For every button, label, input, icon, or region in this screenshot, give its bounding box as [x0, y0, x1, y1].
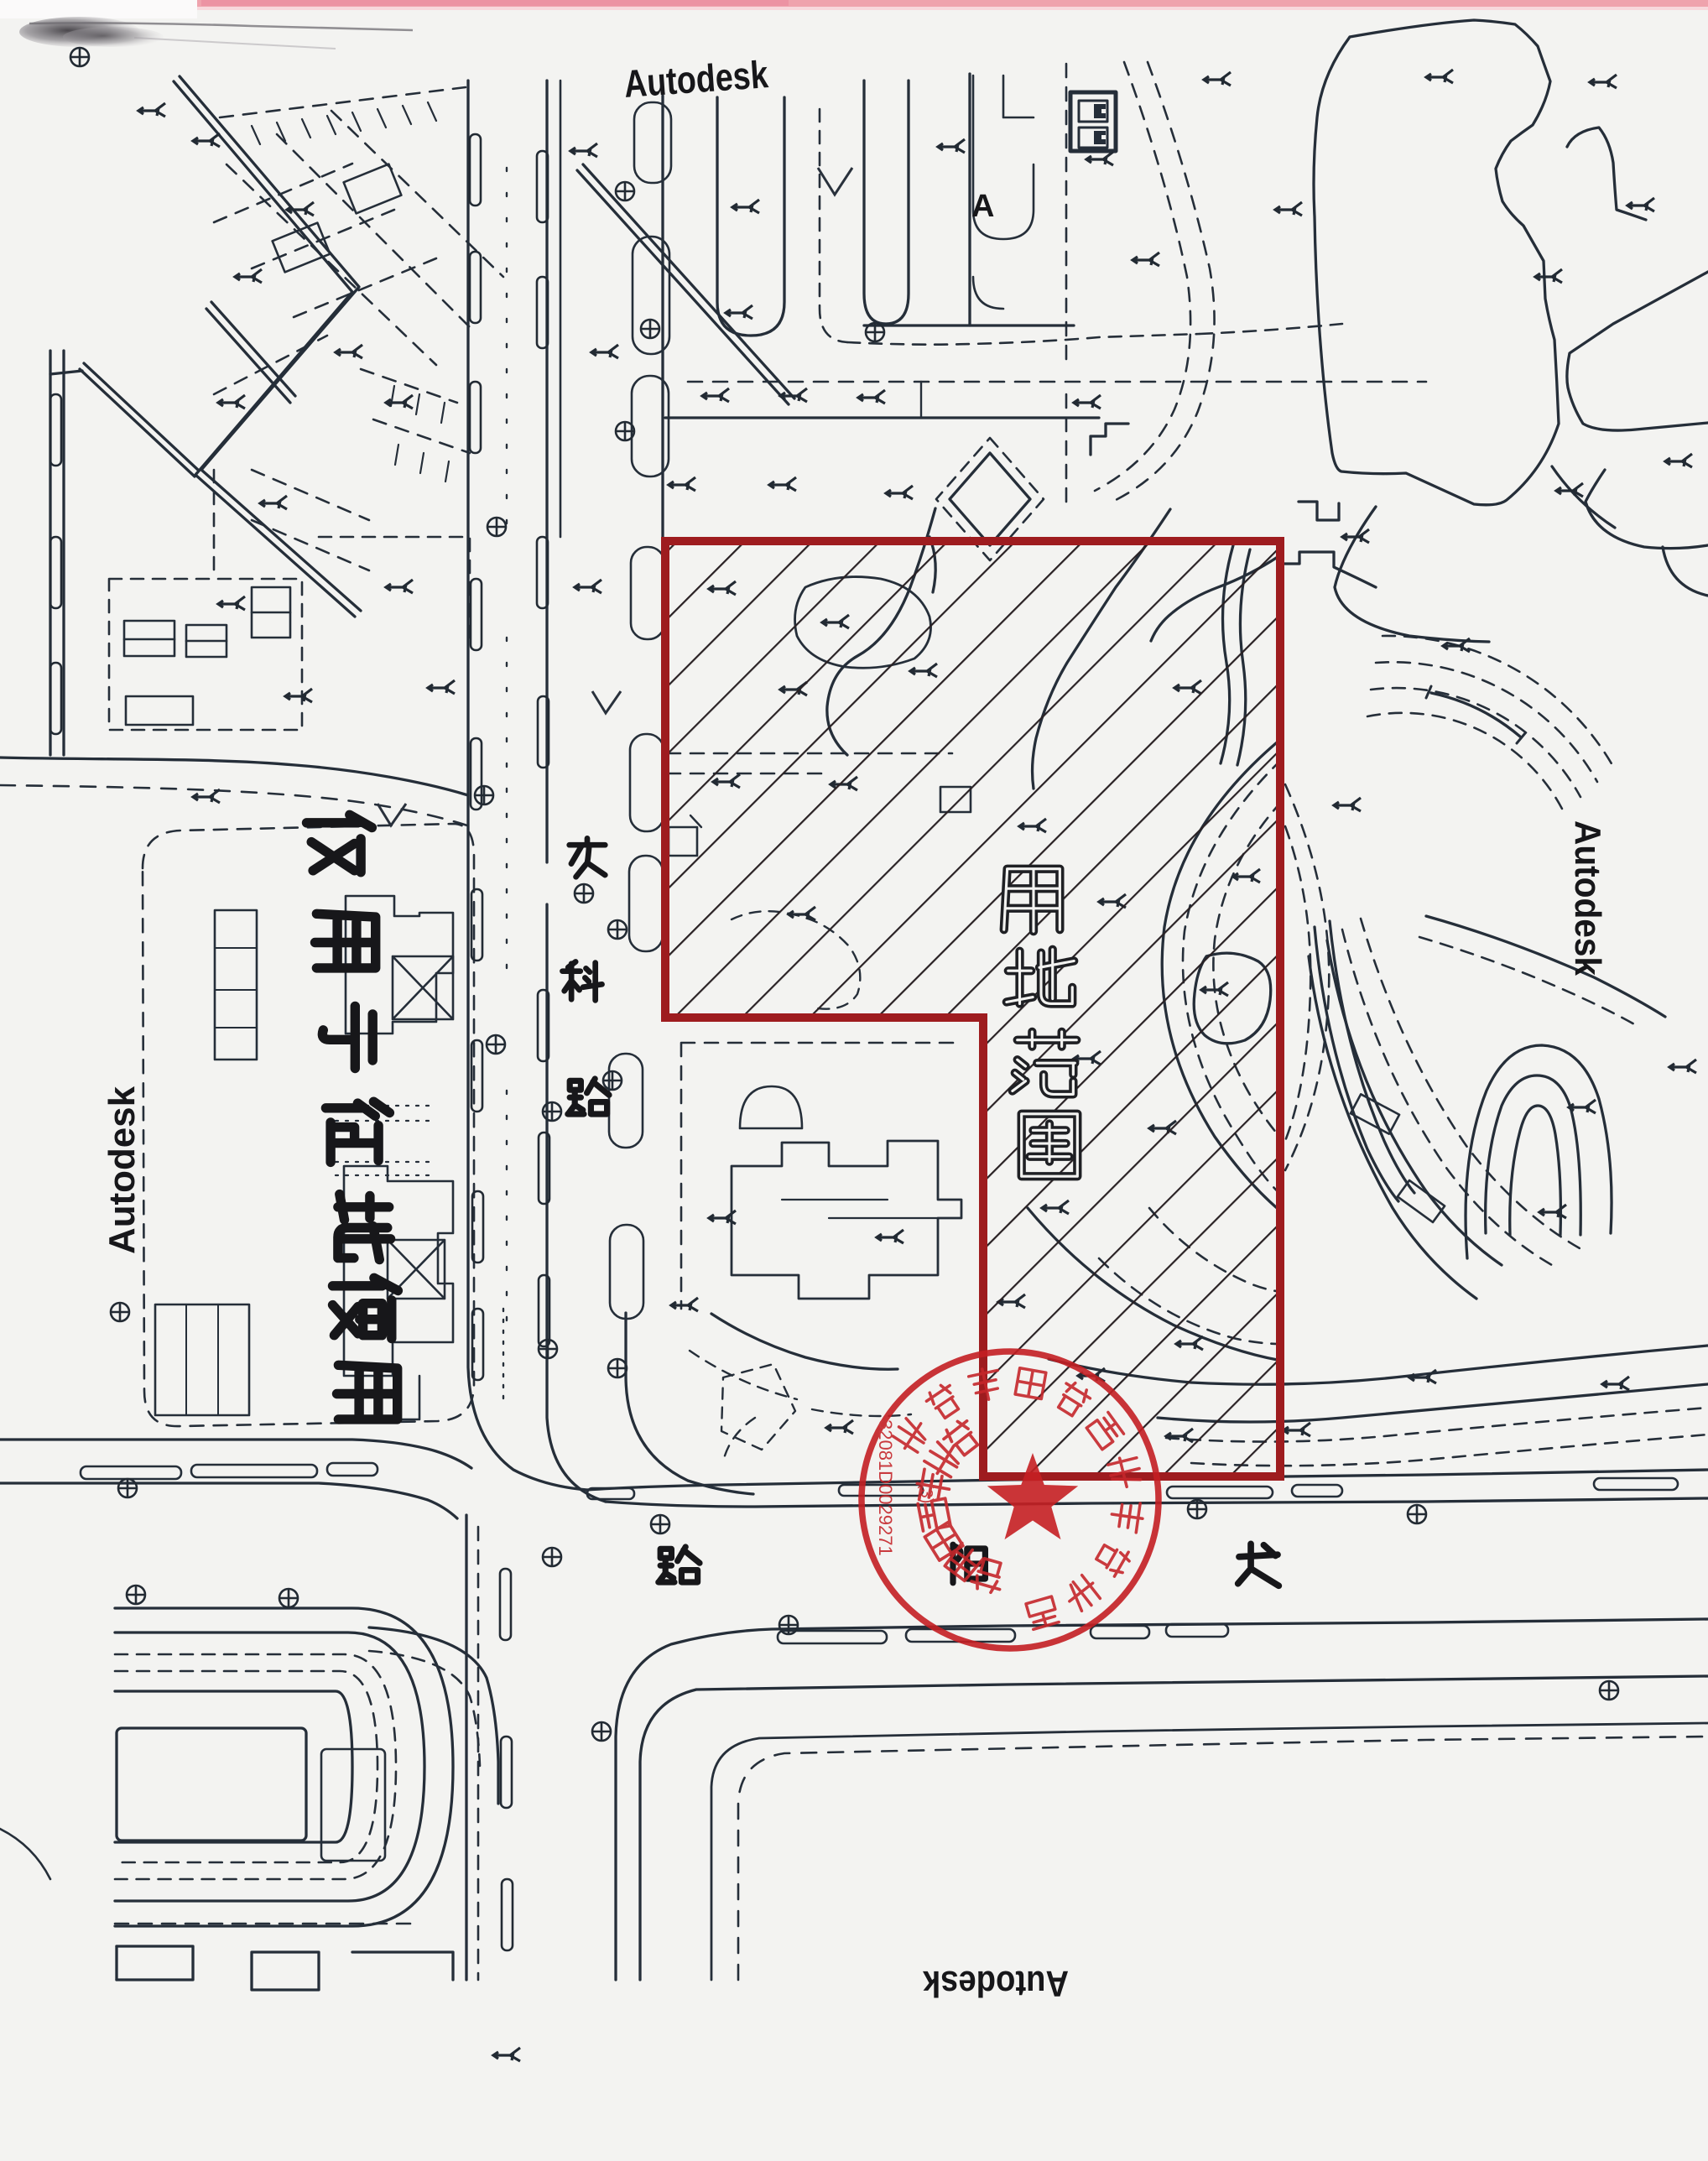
svg-text:(3): (3) — [917, 1483, 935, 1503]
svg-text:A: A — [971, 189, 994, 224]
svg-text:Autodesk: Autodesk — [1567, 820, 1608, 976]
svg-text:Autodesk: Autodesk — [102, 1086, 143, 1254]
svg-text:Autodesk: Autodesk — [923, 1963, 1069, 2004]
svg-text:32081D0029271: 32081D0029271 — [875, 1419, 896, 1556]
